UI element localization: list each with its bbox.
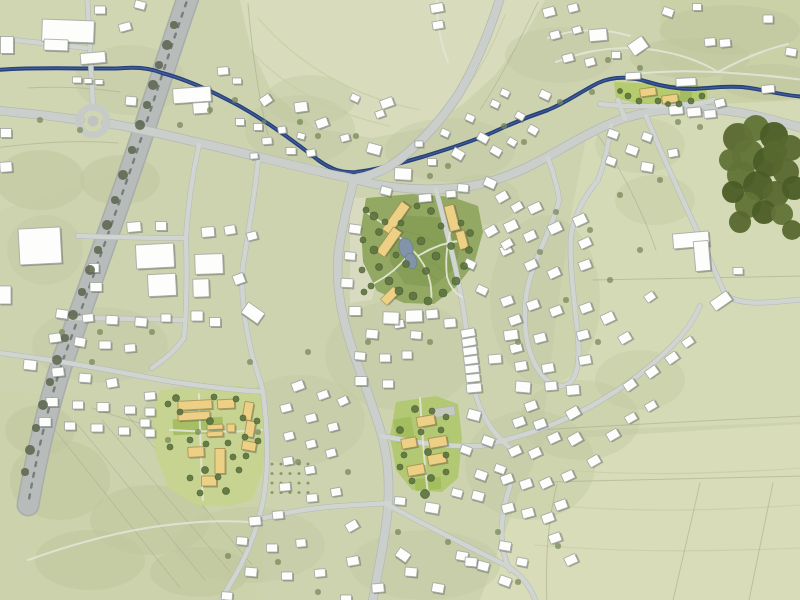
building <box>704 37 717 48</box>
building <box>135 243 176 271</box>
building <box>106 377 120 390</box>
building <box>428 159 439 168</box>
building-footprint <box>282 456 293 466</box>
building-footprint <box>418 193 432 202</box>
building-footprint <box>84 79 92 84</box>
tree <box>118 170 128 180</box>
building-footprint <box>80 51 106 64</box>
building-footprint <box>18 227 62 265</box>
building <box>267 544 280 554</box>
tree <box>170 21 178 29</box>
building-footprint <box>430 2 444 13</box>
building-footprint <box>221 592 233 600</box>
building <box>733 268 745 277</box>
proposed-building-footprint <box>227 424 235 432</box>
tree <box>315 589 321 595</box>
building <box>221 592 234 600</box>
tree <box>97 329 103 335</box>
tree <box>637 65 643 71</box>
building-footprint <box>346 556 359 567</box>
building <box>262 137 274 146</box>
building <box>236 537 249 548</box>
building-footprint <box>612 52 621 59</box>
tree <box>385 277 393 285</box>
building <box>383 380 396 390</box>
building <box>91 424 105 434</box>
building-footprint <box>344 252 356 261</box>
building-footprint <box>195 254 224 275</box>
tree <box>187 475 193 481</box>
tree <box>515 579 521 585</box>
orchard-tree <box>306 481 309 484</box>
tree <box>32 424 40 432</box>
building-footprint <box>1 129 12 138</box>
tree <box>461 263 468 270</box>
building-footprint <box>514 361 527 372</box>
building-footprint <box>294 101 308 113</box>
orchard-tree <box>270 491 273 494</box>
building-footprint <box>73 401 84 409</box>
tree <box>61 334 69 342</box>
tree <box>360 237 366 243</box>
tree <box>167 444 173 450</box>
tree <box>618 89 623 94</box>
building-footprint <box>394 168 412 181</box>
proposed-building-footprint <box>640 87 657 97</box>
building <box>18 227 63 267</box>
building-footprint <box>0 162 12 173</box>
minor-road <box>78 236 186 238</box>
building-footprint <box>296 539 307 548</box>
building <box>52 367 67 379</box>
building <box>147 273 178 298</box>
building-footprint <box>135 317 148 327</box>
tree <box>247 359 253 365</box>
building <box>426 309 440 321</box>
tree <box>617 192 623 198</box>
building <box>344 252 357 263</box>
building <box>124 343 137 354</box>
building <box>330 487 343 498</box>
tree <box>254 418 260 424</box>
tree <box>37 117 43 123</box>
building-footprint <box>341 595 352 600</box>
orchard-tree <box>306 462 309 465</box>
proposed-building-footprint <box>241 440 256 451</box>
tree <box>297 119 303 125</box>
tree <box>438 223 444 229</box>
building <box>210 318 223 329</box>
building-footprint <box>44 39 68 51</box>
building-footprint <box>245 567 258 577</box>
tree <box>359 267 365 273</box>
building-footprint <box>249 516 262 526</box>
tree <box>397 464 403 470</box>
building-footprint <box>156 222 167 231</box>
building-footprint <box>372 583 385 593</box>
tree <box>417 237 425 245</box>
tree <box>427 339 433 345</box>
building <box>106 315 120 326</box>
building-footprint <box>704 38 716 47</box>
building <box>404 567 418 579</box>
site-plan-canvas <box>0 0 800 600</box>
building-footprint <box>545 381 558 391</box>
building-footprint <box>127 221 142 232</box>
tree <box>501 123 507 129</box>
tree <box>275 559 281 565</box>
building <box>282 572 295 582</box>
building <box>46 398 60 409</box>
tree <box>376 264 383 271</box>
building <box>402 351 414 361</box>
tree <box>78 288 86 296</box>
building-footprint <box>431 583 444 594</box>
building <box>217 66 230 77</box>
building <box>719 38 732 49</box>
building <box>667 148 680 159</box>
building-footprint <box>424 502 440 514</box>
building-footprint <box>457 184 469 193</box>
building-footprint <box>693 4 702 11</box>
forest-tree <box>719 149 741 171</box>
tree <box>52 355 62 365</box>
building-footprint <box>354 352 366 361</box>
building-footprint <box>278 126 287 134</box>
tree <box>197 490 203 496</box>
building <box>1 129 14 140</box>
building-footprint <box>314 569 326 578</box>
proposed-building-footprint <box>401 437 418 449</box>
tree <box>395 287 403 295</box>
building <box>145 429 157 439</box>
tree <box>230 454 236 460</box>
tree <box>427 173 433 179</box>
tree <box>148 80 158 90</box>
tree <box>143 101 151 109</box>
tree <box>452 277 460 285</box>
building <box>161 314 173 324</box>
tree <box>368 283 374 289</box>
building <box>464 557 478 569</box>
building <box>73 77 84 85</box>
tree <box>353 133 359 139</box>
tree <box>428 475 435 482</box>
building <box>82 313 95 324</box>
building-footprint <box>125 96 137 106</box>
proposed-building-footprint <box>202 476 217 486</box>
building <box>80 51 107 66</box>
building-footprint <box>193 279 210 298</box>
tree <box>111 196 119 204</box>
building-footprint <box>97 403 109 412</box>
building <box>236 119 247 128</box>
building <box>306 493 319 504</box>
tree <box>605 57 611 63</box>
building <box>90 283 104 294</box>
building <box>341 278 355 289</box>
building <box>348 224 363 236</box>
building <box>282 456 295 467</box>
building-footprint <box>55 309 68 320</box>
tree <box>625 93 631 99</box>
tree <box>203 441 209 447</box>
orchard-tree <box>279 462 282 465</box>
tree <box>607 277 613 283</box>
building <box>704 109 718 120</box>
tree <box>177 122 183 128</box>
forest-tree <box>722 181 744 203</box>
tree <box>636 98 642 104</box>
tree <box>445 539 451 545</box>
tree <box>657 177 663 183</box>
proposed-building-footprint <box>217 399 234 409</box>
tree <box>395 529 401 535</box>
vegetation-patch <box>265 75 355 125</box>
building-footprint <box>785 47 797 57</box>
building-footprint <box>541 363 554 374</box>
building-footprint <box>236 119 245 126</box>
tree <box>439 289 447 297</box>
building-footprint <box>444 318 457 328</box>
building <box>693 240 712 273</box>
building-footprint <box>161 314 171 322</box>
building-footprint <box>82 314 94 323</box>
building-footprint <box>402 351 412 359</box>
tree <box>414 203 420 209</box>
building <box>193 279 211 299</box>
building <box>488 354 503 366</box>
tree <box>215 474 221 480</box>
tree <box>370 212 378 220</box>
building <box>304 465 317 476</box>
building-footprint <box>410 331 422 340</box>
tree <box>242 434 248 440</box>
tree <box>376 229 383 236</box>
tree <box>225 440 231 446</box>
tree <box>557 99 563 105</box>
tree <box>46 378 54 386</box>
building <box>125 406 138 416</box>
tree <box>495 529 501 535</box>
building <box>763 15 775 25</box>
building <box>0 161 14 173</box>
building <box>254 124 265 133</box>
building <box>394 497 407 508</box>
building <box>286 148 298 157</box>
tree <box>89 359 95 365</box>
tree <box>521 139 527 145</box>
tree <box>173 395 180 402</box>
tree <box>162 40 172 50</box>
building-footprint <box>125 406 136 414</box>
building-footprint <box>106 378 118 389</box>
tree <box>443 469 449 475</box>
building-footprint <box>733 268 743 275</box>
building-footprint <box>463 346 478 356</box>
tree <box>438 427 444 433</box>
building-footprint <box>464 355 479 365</box>
forest-tree <box>729 211 751 233</box>
building <box>23 359 39 372</box>
building-footprint <box>693 240 711 271</box>
proposed-building-footprint <box>188 447 205 458</box>
building-footprint <box>91 424 103 432</box>
tree <box>423 268 430 275</box>
building-footprint <box>173 86 212 104</box>
building <box>0 286 13 306</box>
tree <box>202 467 209 474</box>
tree <box>458 220 464 226</box>
tree <box>305 349 311 355</box>
building-footprint <box>515 381 531 393</box>
building-footprint <box>719 39 731 48</box>
building <box>144 391 157 402</box>
building-footprint <box>217 67 229 76</box>
orchard-tree <box>297 491 300 494</box>
tree <box>365 339 371 345</box>
building <box>145 408 157 418</box>
building <box>355 377 369 388</box>
tree <box>555 543 561 549</box>
proposed-building <box>207 424 225 431</box>
building-footprint <box>341 278 353 288</box>
building-footprint <box>135 243 174 269</box>
building <box>589 28 610 43</box>
building-footprint <box>380 354 391 362</box>
building-footprint <box>282 572 293 580</box>
proposed-building-footprint <box>215 449 225 474</box>
building <box>97 403 111 414</box>
building <box>612 52 623 61</box>
building-footprint <box>95 6 106 14</box>
building-footprint <box>210 318 221 327</box>
building-footprint <box>65 422 76 430</box>
proposed-building <box>188 447 206 459</box>
building-footprint <box>147 273 176 296</box>
building <box>566 384 581 397</box>
building <box>383 312 401 326</box>
tree <box>688 98 694 104</box>
tree <box>515 339 521 345</box>
building-footprint <box>224 225 236 236</box>
tree <box>697 124 703 130</box>
building-footprint <box>262 137 273 145</box>
tree <box>155 61 163 69</box>
building-footprint <box>95 80 103 85</box>
tree <box>128 146 136 154</box>
building <box>65 422 78 432</box>
tree <box>233 396 239 402</box>
building-footprint <box>466 373 481 382</box>
tree <box>445 163 451 169</box>
building-footprint <box>704 109 717 118</box>
tree <box>421 490 430 499</box>
building-footprint <box>119 427 130 435</box>
forest-tree <box>763 140 787 164</box>
tree <box>425 449 432 456</box>
building <box>140 419 152 429</box>
building-footprint <box>465 557 478 567</box>
tree <box>589 89 595 95</box>
building-footprint <box>763 15 773 23</box>
building-footprint <box>566 384 580 395</box>
tree <box>424 297 432 305</box>
building-footprint <box>383 312 399 325</box>
building-footprint <box>394 497 406 506</box>
building-footprint <box>348 224 361 235</box>
building-footprint <box>432 20 444 30</box>
building <box>39 418 53 429</box>
building <box>191 311 205 323</box>
tree <box>255 438 261 444</box>
proposed-building-footprint <box>207 424 223 430</box>
building-footprint <box>52 367 65 377</box>
tree <box>537 249 543 255</box>
site-plan-map[interactable] <box>0 0 800 600</box>
proposed-building <box>215 449 227 476</box>
building-footprint <box>503 329 518 341</box>
building-footprint <box>145 429 155 437</box>
building-footprint <box>73 77 82 83</box>
building <box>249 516 263 528</box>
tree <box>255 429 261 435</box>
building <box>294 101 310 114</box>
building-footprint <box>466 383 482 393</box>
tree <box>563 297 569 303</box>
building-footprint <box>279 483 291 492</box>
building <box>79 373 93 384</box>
building-footprint <box>446 190 457 198</box>
orchard-tree <box>288 472 291 475</box>
tree <box>466 247 473 254</box>
building-footprint <box>304 465 315 475</box>
building-footprint <box>48 333 61 344</box>
building <box>74 337 88 350</box>
building-footprint <box>191 311 203 321</box>
building-footprint <box>79 373 92 383</box>
tree <box>393 252 399 258</box>
building <box>272 510 285 521</box>
tree <box>699 93 705 99</box>
tree <box>240 415 246 421</box>
building <box>761 84 776 95</box>
tree <box>225 553 231 559</box>
building-footprint <box>667 148 678 158</box>
tree <box>467 230 474 237</box>
building <box>372 583 386 595</box>
tree <box>412 406 419 413</box>
building-footprint <box>286 148 296 155</box>
building <box>410 331 423 342</box>
building <box>354 352 367 363</box>
building <box>44 39 70 52</box>
building <box>405 310 424 324</box>
building-footprint <box>366 329 379 339</box>
building-footprint <box>465 364 480 373</box>
building <box>446 190 458 199</box>
building-footprint <box>687 107 702 117</box>
tree <box>232 97 238 103</box>
building-footprint <box>761 84 775 93</box>
tree <box>165 401 171 407</box>
tree <box>38 400 48 410</box>
building-footprint <box>267 544 278 552</box>
building-footprint <box>640 162 653 173</box>
building <box>279 482 292 493</box>
tree <box>59 329 65 335</box>
tree <box>236 467 242 473</box>
